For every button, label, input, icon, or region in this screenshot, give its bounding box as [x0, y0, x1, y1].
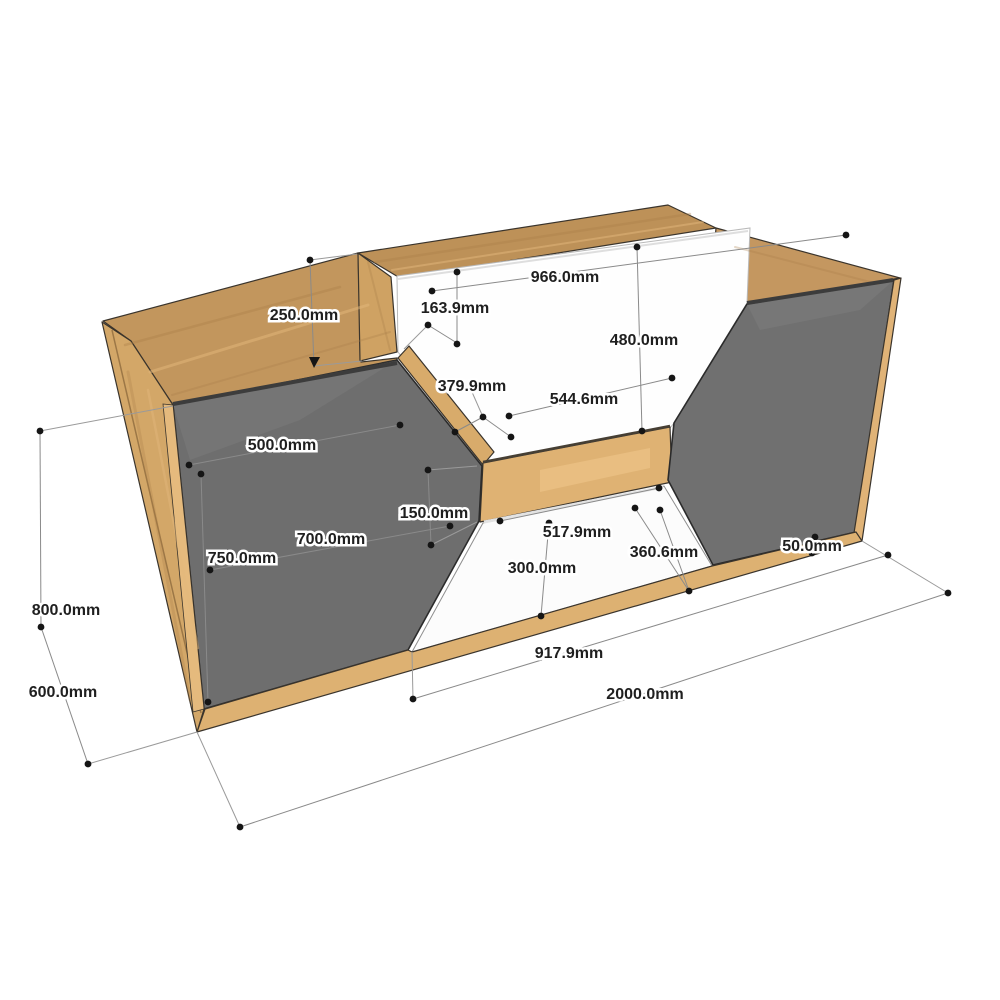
dim-label-750: 750.0mm — [208, 550, 277, 567]
dim-label-966: 966.0mm — [531, 269, 600, 286]
dim-label-600: 600.0mm — [29, 684, 98, 701]
dim-label-2000: 2000.0mm — [606, 686, 683, 703]
dim-label-800: 800.0mm — [32, 602, 101, 619]
dim-label-480: 480.0mm — [610, 332, 679, 349]
dim-label-50: 50.0mm — [782, 538, 842, 555]
dim-label-360: 360.6mm — [630, 544, 699, 561]
dim-label-250: 250.0mm — [270, 307, 339, 324]
dim-label-500: 500.0mm — [248, 437, 317, 454]
dim-label-150: 150.0mm — [400, 505, 469, 522]
cabinet-body — [102, 205, 901, 732]
furniture-dimension-drawing: 966.0mm 163.9mm 480.0mm 379.9mm 544.6mm … — [0, 0, 1000, 1000]
dim-label-917: 917.9mm — [535, 645, 604, 662]
dim-label-379: 379.9mm — [438, 378, 507, 395]
dim-label-517: 517.9mm — [543, 524, 612, 541]
dim-label-163: 163.9mm — [421, 300, 490, 317]
dim-label-300: 300.0mm — [508, 560, 577, 577]
dim-label-544: 544.6mm — [550, 391, 619, 408]
drawing-canvas: 966.0mm 163.9mm 480.0mm 379.9mm 544.6mm … — [0, 0, 1000, 1000]
dim-label-700: 700.0mm — [297, 531, 366, 548]
